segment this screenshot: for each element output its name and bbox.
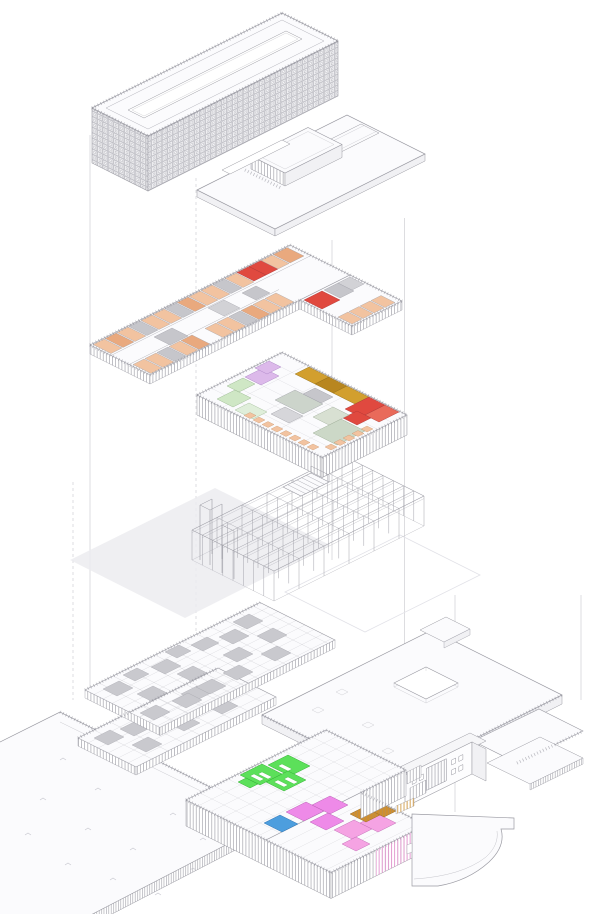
clinical-floor-plan	[197, 353, 407, 478]
ward-floor-plan	[90, 245, 402, 384]
exploded-axonometric-diagram	[0, 0, 600, 914]
fan-hall	[407, 814, 514, 886]
diagram-canvas	[0, 0, 600, 914]
